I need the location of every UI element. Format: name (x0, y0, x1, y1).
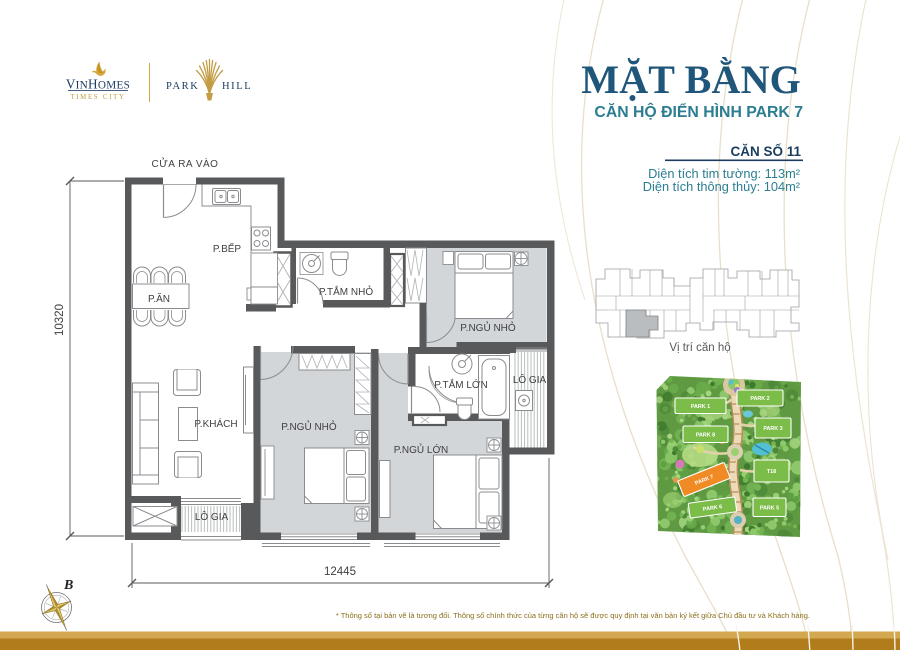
svg-text:PARK 2: PARK 2 (750, 396, 769, 402)
svg-text:MẶT BẰNG: MẶT BẰNG (581, 57, 801, 102)
svg-text:12445: 12445 (324, 566, 356, 578)
svg-text:* Thông số tại bản vẽ là tương: * Thông số tại bản vẽ là tương đối. Thôn… (336, 611, 810, 620)
svg-text:PARK 5: PARK 5 (760, 505, 779, 511)
svg-text:PARK 3: PARK 3 (763, 426, 782, 432)
svg-text:CĂN HỘ ĐIỂN HÌNH PARK 7: CĂN HỘ ĐIỂN HÌNH PARK 7 (594, 102, 803, 121)
svg-text:PARK 1: PARK 1 (691, 404, 710, 410)
svg-text:CĂN SỐ 11: CĂN SỐ 11 (730, 144, 801, 159)
svg-text:PARK: PARK (166, 81, 199, 92)
svg-text:10320: 10320 (54, 304, 66, 336)
svg-text:P.KHÁCH: P.KHÁCH (194, 417, 237, 430)
svg-text:Diện tích thông thủy: 104m²: Diện tích thông thủy: 104m² (643, 179, 801, 194)
svg-text:LÔ GIA: LÔ GIA (513, 373, 547, 386)
svg-text:B: B (63, 578, 73, 593)
svg-text:P.BẾP: P.BẾP (213, 242, 241, 255)
svg-text:LÔ GIA: LÔ GIA (195, 510, 229, 523)
svg-text:PARK 8: PARK 8 (696, 432, 715, 438)
svg-text:P.TẮM LỚN: P.TẮM LỚN (434, 378, 487, 391)
svg-text:P.NGỦ LỚN: P.NGỦ LỚN (394, 443, 449, 456)
svg-text:P.TẮM NHỎ: P.TẮM NHỎ (319, 285, 373, 298)
svg-text:VINHOMES: VINHOMES (66, 77, 130, 92)
svg-text:HILL: HILL (222, 81, 252, 92)
svg-text:CỬA RA VÀO: CỬA RA VÀO (152, 157, 219, 170)
svg-text:TIMES CITY: TIMES CITY (70, 94, 125, 101)
svg-text:T18: T18 (767, 469, 776, 475)
svg-text:P.NGỦ NHỎ: P.NGỦ NHỎ (460, 321, 516, 334)
svg-text:Vị trí căn hộ: Vị trí căn hộ (669, 342, 730, 354)
svg-text:P.ĂN: P.ĂN (148, 292, 170, 305)
svg-text:P.NGỦ NHỎ: P.NGỦ NHỎ (281, 420, 337, 433)
